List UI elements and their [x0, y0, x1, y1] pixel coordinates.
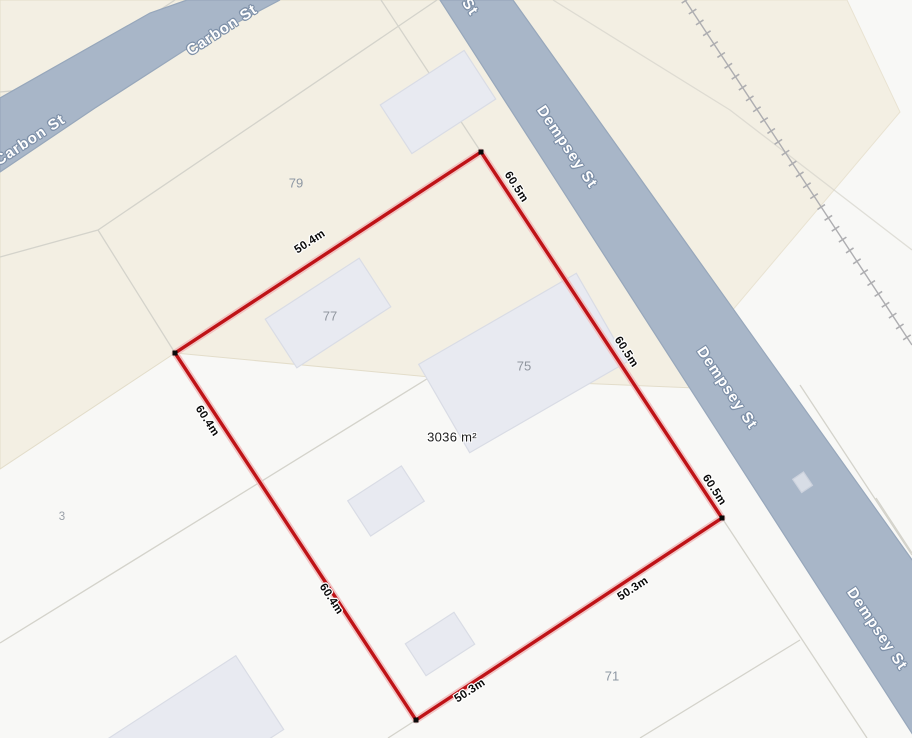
vertex-handle-top[interactable] — [479, 150, 484, 155]
map-layers — [0, 0, 912, 738]
vertex-handle-bottom[interactable] — [414, 718, 419, 723]
vertex-handle-right[interactable] — [720, 516, 725, 521]
map-canvas[interactable]: Carbon St Carbon St St Dempsey St Dempse… — [0, 0, 912, 738]
vertex-handle-left[interactable] — [173, 351, 178, 356]
